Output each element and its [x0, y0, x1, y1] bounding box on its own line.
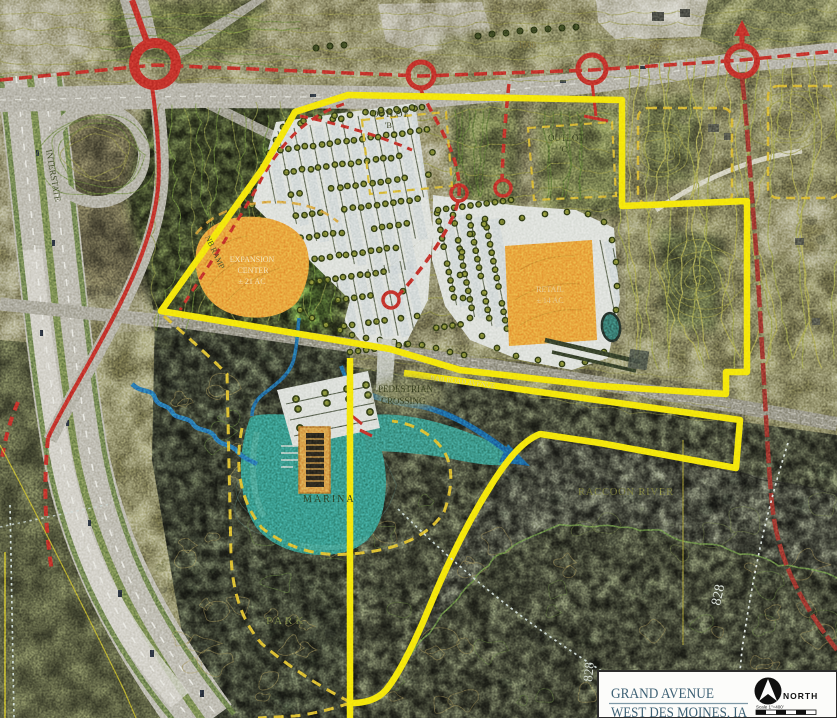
- svg-text:GRAND AVENUE: GRAND AVENUE: [611, 686, 714, 702]
- svg-text:NORTH: NORTH: [783, 691, 818, 701]
- svg-text:WEST DES MOINES, IA: WEST DES MOINES, IA: [611, 705, 747, 718]
- svg-text:Scale 1"=400': Scale 1"=400': [756, 705, 784, 710]
